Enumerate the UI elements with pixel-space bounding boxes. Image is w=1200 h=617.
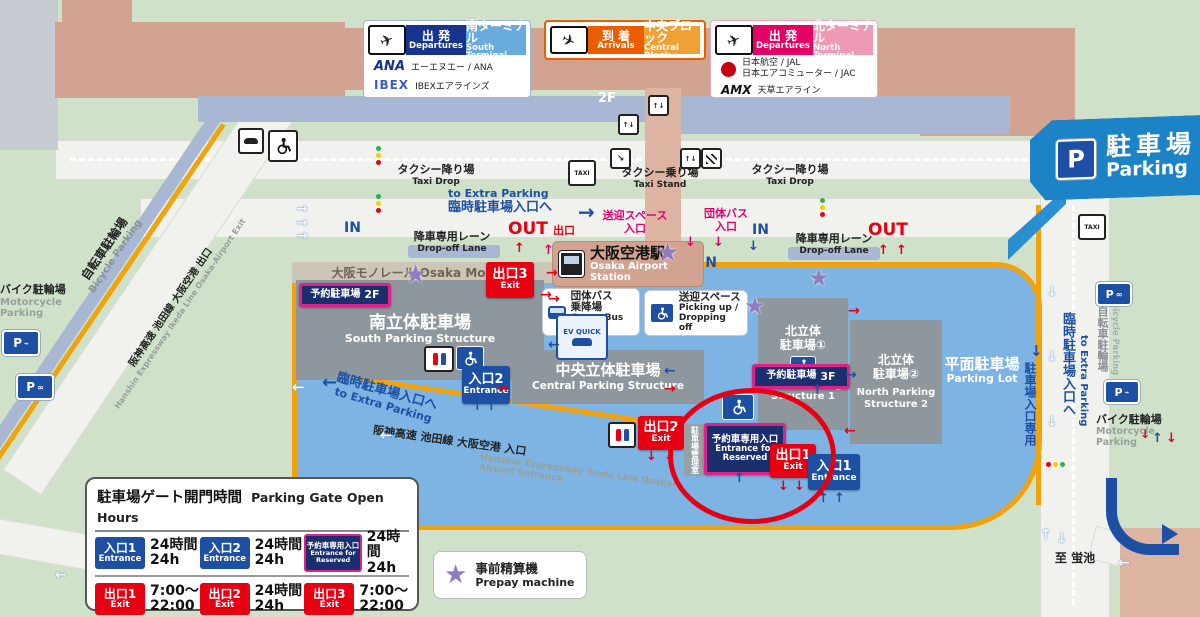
flow-arrow: ← bbox=[292, 380, 305, 395]
terminal-south bbox=[55, 22, 345, 98]
surface-parking-lot: 平面駐車場 Parking Lot bbox=[930, 356, 1034, 386]
car-glyph bbox=[244, 138, 258, 144]
north2-en2: Structure 2 bbox=[864, 399, 928, 411]
arrivals-jp: 到 着 bbox=[602, 30, 630, 42]
flow-arrow: ↑ bbox=[543, 244, 554, 257]
flow-arrow: → bbox=[845, 368, 857, 382]
terminal-deck-north bbox=[680, 96, 1010, 134]
motorcycle-jp: バイク駐輪場 bbox=[1096, 414, 1196, 427]
bicycle-glyph: ∞ bbox=[37, 383, 44, 392]
departures-cell: 出 発 Departures bbox=[406, 25, 466, 55]
bicycle-p-icon: P∞ bbox=[1096, 282, 1132, 306]
gate-hours-cell: 入口1 Entrance 24時間 24h bbox=[95, 537, 200, 569]
hours-line1: 24時間 bbox=[255, 538, 302, 553]
reserved-badge-jp: 予約駐車場 bbox=[766, 371, 816, 382]
flow-arrow: ↓ bbox=[1166, 432, 1177, 445]
flow-arrow: ← bbox=[322, 374, 337, 392]
badge-en2: Reserved bbox=[306, 557, 359, 564]
prepay-star-icon: ★ bbox=[404, 262, 427, 288]
flow-arrow: ↓ bbox=[1046, 350, 1058, 364]
ev-quick-charger: EV QUICK bbox=[556, 314, 608, 360]
flow-arrow: ← bbox=[497, 364, 509, 378]
taxi-icon: TAXI bbox=[1078, 214, 1106, 240]
to-hotarugaike-label: 至 蛍池 bbox=[1040, 552, 1110, 566]
scooter-glyph: ⌁ bbox=[24, 339, 29, 348]
prepay-en: Prepay machine bbox=[475, 576, 574, 589]
flow-arrow: ↓ bbox=[1046, 285, 1058, 299]
south-terminal-header: ✈ 出 発 Departures 南ターミナル South Terminal A… bbox=[363, 20, 531, 98]
badge-jp: 入口2 bbox=[200, 542, 250, 555]
train-icon bbox=[559, 251, 584, 277]
south-terminal-cell: 南ターミナル South Terminal bbox=[466, 25, 526, 55]
gate-hours-panel: 駐車場ゲート開門時間 Parking Gate Open Hours 入口1 E… bbox=[85, 477, 419, 611]
wheelchair-glyph bbox=[275, 137, 291, 155]
to-extra-parking-vertical-en: to Extra Parking bbox=[1078, 335, 1089, 445]
gate-hours-cell: 出口1 Exit 7:00～ 22:00 bbox=[95, 583, 200, 615]
plane-glyph: ✈ bbox=[724, 29, 743, 51]
route-curve-arrowhead bbox=[1162, 524, 1178, 544]
pickup-text: 送迎スペース Picking up / Dropping off bbox=[679, 292, 742, 333]
in-text: IN bbox=[344, 220, 361, 236]
taxi-drop-en: Taxi Drop bbox=[742, 177, 838, 187]
lot-jp: 平面駐車場 bbox=[930, 356, 1034, 373]
central-block-header: ✈ 到 着 Arrivals 中央ブロック Central Block bbox=[544, 20, 706, 60]
departures-jp: 出 発 bbox=[422, 30, 450, 42]
groupbus-entrance-jp2: 入口 bbox=[695, 221, 757, 234]
gate-hours-title: 駐車場ゲート開門時間 Parking Gate Open Hours bbox=[95, 484, 409, 532]
flow-arrow: → bbox=[540, 288, 552, 302]
flow-arrow: ← bbox=[664, 364, 676, 378]
entrance2-badge: 入口2 Entrance bbox=[200, 537, 250, 569]
exit1-badge: 出口1 Exit bbox=[95, 583, 145, 615]
prepay-star-icon: ★ bbox=[744, 294, 766, 318]
taxi-drop-en: Taxi Drop bbox=[388, 177, 484, 187]
to-extra-parking-top: to Extra Parking 臨時駐車場入口へ bbox=[448, 188, 578, 216]
prepay-star-icon: ★ bbox=[444, 562, 467, 588]
motorcycle-en1: Motorcycle bbox=[0, 297, 74, 309]
taxi-drop-right: タクシー降り場 Taxi Drop bbox=[742, 164, 838, 187]
gate-hours-row-entrances: 入口1 Entrance 24時間 24h 入口2 Entrance 24時間 … bbox=[95, 532, 409, 574]
reserved-badge-jp: 予約駐車場 bbox=[310, 290, 360, 301]
flow-arrow: ↓ bbox=[1046, 415, 1058, 429]
south-terminal-jp: 南ターミナル bbox=[466, 20, 526, 44]
badge-en: Entrance bbox=[200, 555, 250, 564]
airline-amx: AMX 天草エアライン bbox=[715, 83, 873, 97]
flow-arrow: → bbox=[664, 382, 676, 396]
ev-car-glyph bbox=[572, 338, 592, 346]
flow-arrow: → bbox=[848, 304, 860, 318]
jal-names: 日本航空 / JAL 日本エアコミューター / JAC bbox=[742, 58, 856, 81]
car-drop-icon bbox=[238, 128, 264, 154]
motorcycle-p-icon: P⌁ bbox=[1104, 380, 1140, 404]
arrivals-plane-icon: ✈ bbox=[550, 26, 588, 54]
badge-jp: 入口1 bbox=[95, 542, 145, 555]
hours-line1: 24時間 bbox=[255, 584, 302, 599]
flow-arrow: ← bbox=[1118, 556, 1130, 570]
out-label-east: OUT bbox=[868, 221, 908, 241]
arrivals-cell: 到 着 Arrivals bbox=[588, 26, 644, 54]
banner-text: 駐車場 Parking bbox=[1106, 131, 1196, 182]
north2-jp1: 北立体 bbox=[878, 354, 914, 368]
prepay-legend: ★ 事前精算機 Prepay machine bbox=[433, 551, 587, 599]
departures-plane-icon: ✈ bbox=[715, 25, 753, 55]
dropoff-en: Drop-off Lane bbox=[402, 244, 502, 254]
north2-en1: North Parking bbox=[857, 387, 936, 399]
station-text: 大阪空港駅 Osaka Airport Station bbox=[590, 245, 697, 284]
ibex-logo: IBEX bbox=[374, 78, 409, 92]
hours-line1: 7:00～ bbox=[150, 584, 199, 599]
prepay-text: 事前精算機 Prepay machine bbox=[475, 561, 574, 589]
p-glyph: P bbox=[13, 336, 22, 350]
flow-arrow: ↓ bbox=[1030, 344, 1043, 359]
north-terminal-title: ✈ 出 発 Departures 北ターミナル North Terminal bbox=[715, 25, 873, 55]
central-block-en: Central Block bbox=[644, 44, 700, 61]
north-terminal-jp: 北ターミナル bbox=[813, 20, 873, 44]
exit3-badge: 出口3 Exit bbox=[304, 583, 354, 615]
parking-banner: P 駐車場 Parking bbox=[1030, 115, 1200, 201]
hotarugaike-text: 至 蛍池 bbox=[1040, 552, 1110, 566]
central-block-cell: 中央ブロック Central Block bbox=[644, 26, 700, 54]
wheelchair-glyph bbox=[656, 307, 668, 320]
flow-arrow: ↓ bbox=[646, 450, 657, 463]
bicycle-glyph: ∞ bbox=[1116, 290, 1123, 299]
map-corner-block bbox=[0, 0, 58, 150]
elevator-glyph: ↑↓ bbox=[623, 121, 635, 129]
elevator-icon: ↑↓ bbox=[618, 114, 639, 135]
arrivals-title: ✈ 到 着 Arrivals 中央ブロック Central Block bbox=[550, 26, 700, 54]
flow-arrow: ↑ bbox=[1152, 432, 1163, 445]
hours-line2: 24h bbox=[367, 561, 409, 576]
badge-en: Entrance bbox=[95, 555, 145, 564]
jac-name: 日本エアコミューター / JAC bbox=[742, 69, 856, 80]
flow-arrow: ↓ bbox=[748, 240, 759, 253]
restroom-female bbox=[441, 353, 446, 365]
escalator-icon: ↘ bbox=[610, 148, 631, 169]
out-text: OUT bbox=[868, 220, 908, 240]
south-terminal-en: South Terminal bbox=[466, 44, 526, 61]
hours-line2: 22:00 bbox=[150, 599, 199, 614]
flow-arrow: ↑ bbox=[812, 384, 823, 397]
traffic-light bbox=[376, 146, 381, 165]
restroom-icon bbox=[608, 422, 636, 448]
motorcycle-parking-left: バイク駐輪場 Motorcycle Parking bbox=[0, 284, 74, 320]
p-glyph: P bbox=[1115, 386, 1123, 399]
dropoff-jp: 降車専用レーン bbox=[402, 231, 502, 244]
hours-value: 24時間 24h bbox=[367, 530, 409, 576]
traffic-light bbox=[820, 198, 825, 217]
parking-banner-en: Parking bbox=[1106, 156, 1196, 182]
central-structure-jp: 中央立体駐車場 bbox=[555, 362, 660, 379]
north2-jp2: 駐車場② bbox=[873, 368, 919, 382]
flow-arrow: → bbox=[546, 266, 558, 280]
restroom-female bbox=[624, 429, 629, 441]
reserved-badge-floor: 2F bbox=[364, 289, 379, 301]
hours-value: 24時間 24h bbox=[150, 538, 197, 569]
airline-ana: ANA エーエヌエー / ANA bbox=[368, 59, 526, 74]
flow-arrow: → bbox=[296, 202, 308, 216]
terminal-deck-south bbox=[198, 96, 646, 122]
extra-parking-arrow: → bbox=[578, 202, 595, 222]
bicycle-parking-vertical-en: Bicycle Parking bbox=[1110, 302, 1120, 392]
north-terminal-header: ✈ 出 発 Departures 北ターミナル North Terminal 日… bbox=[710, 20, 878, 98]
out-text: OUT bbox=[508, 219, 548, 239]
p-glyph: P bbox=[26, 380, 35, 394]
taxi-glyph: TAXI bbox=[574, 170, 589, 177]
jal-name: 日本航空 / JAL bbox=[742, 58, 856, 69]
elevator-icon: ↑↓ bbox=[680, 148, 701, 169]
taxi-drop-jp: タクシー降り場 bbox=[388, 164, 484, 177]
wheelchair-icon bbox=[650, 303, 674, 323]
taxi-glyph: TAXI bbox=[1084, 224, 1099, 231]
flow-arrow: ← bbox=[844, 424, 856, 438]
taxi-drop-jp: タクシー降り場 bbox=[742, 164, 838, 177]
badge-en: Exit bbox=[95, 601, 145, 610]
taxi-icon: TAXI bbox=[568, 160, 596, 186]
dropoff-lane-west: 降車専用レーン Drop-off Lane bbox=[402, 231, 502, 254]
pickup-entrance-label: 送迎スペース 入口 bbox=[590, 210, 680, 235]
flow-arrow: ↑ bbox=[472, 400, 483, 413]
hours-value: 7:00～ 22:00 bbox=[359, 584, 408, 615]
parking-banner-jp: 駐車場 bbox=[1106, 131, 1196, 159]
out-label-west: OUT 出口 bbox=[508, 220, 578, 240]
group-bus-jp2: 乗降場 bbox=[571, 302, 634, 314]
amx-logo: AMX bbox=[721, 83, 751, 97]
hours-value: 24時間 24h bbox=[255, 538, 302, 569]
gate-hours-cell: 出口3 Exit 7:00～ 22:00 bbox=[304, 583, 409, 615]
badge-en: Exit bbox=[200, 601, 250, 610]
escalator-glyph: ↘ bbox=[617, 154, 625, 164]
floor-2f-text: 2F bbox=[598, 92, 616, 107]
reserved-2f-badge: 予約駐車場 2F bbox=[299, 283, 391, 307]
restroom-icon bbox=[424, 346, 454, 372]
out-exit-jp: 出口 bbox=[553, 224, 575, 237]
dropoff-en: Drop-off Lane bbox=[784, 246, 884, 256]
prepay-star-icon: ★ bbox=[808, 266, 830, 290]
pickup-space: 送迎スペース Picking up / Dropping off bbox=[644, 290, 748, 336]
ev-quick-label: EV QUICK bbox=[563, 329, 600, 336]
taxi-stand: タクシー乗り場 Taxi Stand bbox=[612, 167, 708, 190]
flow-arrow: ↓ bbox=[1056, 532, 1068, 546]
gate-hours-title-jp: 駐車場ゲート開門時間 bbox=[97, 490, 242, 506]
stairs-icon bbox=[701, 148, 722, 169]
amx-name: 天草エアライン bbox=[757, 83, 820, 96]
plane-glyph: ✈ bbox=[559, 29, 579, 52]
airline-ibex: IBEX IBEXエアラインズ bbox=[368, 78, 526, 92]
flow-arrow: → bbox=[497, 382, 509, 396]
flow-arrow: ↓ bbox=[713, 236, 724, 249]
in-text: IN bbox=[752, 222, 769, 238]
departures-en: Departures bbox=[756, 42, 810, 51]
south-structure-jp: 南立体駐車場 bbox=[369, 314, 471, 334]
pickup-entrance-jp1: 送迎スペース bbox=[590, 210, 680, 223]
ibex-name: IBEXエアラインズ bbox=[415, 79, 490, 92]
hours-line1: 24時間 bbox=[150, 538, 197, 553]
osaka-airport-station: 大阪空港駅 Osaka Airport Station bbox=[552, 241, 704, 287]
p-glyph: P bbox=[1067, 145, 1085, 174]
hours-line2: 22:00 bbox=[359, 599, 408, 614]
traffic-light bbox=[1046, 462, 1065, 467]
gate-hours-cell: 入口2 Entrance 24時間 24h bbox=[200, 537, 305, 569]
in-label-west: IN bbox=[344, 220, 361, 236]
departures-en: Departures bbox=[409, 42, 463, 51]
restroom-male bbox=[433, 353, 438, 365]
central-block-jp: 中央ブロック bbox=[644, 20, 700, 44]
bicycle-p-icon: P∞ bbox=[16, 374, 54, 400]
gate-hours-cell: 出口2 Exit 24時間 24h bbox=[200, 583, 305, 615]
p-glyph: P bbox=[1106, 288, 1114, 301]
north-terminal-cell: 北ターミナル North Terminal bbox=[813, 25, 873, 55]
airport-parking-map: 大阪モノレール Osaka Monorail ✈ 出 発 Departures … bbox=[0, 0, 1200, 617]
arrivals-en: Arrivals bbox=[597, 42, 634, 51]
groupbus-entrance-jp1: 団体バス bbox=[695, 208, 757, 221]
flow-arrow: ↓ bbox=[1140, 428, 1150, 440]
stairs-glyph bbox=[706, 154, 717, 164]
extra-parking-jp: 臨時駐車場入口へ bbox=[448, 201, 578, 216]
scooter-glyph: ⌁ bbox=[1125, 388, 1130, 397]
motorcycle-jp: バイク駐輪場 bbox=[0, 284, 74, 297]
jal-logo bbox=[721, 62, 736, 77]
flow-arrow: ↑ bbox=[878, 244, 889, 257]
extra-parking-en: to Extra Parking bbox=[448, 188, 578, 201]
hours-line2: 24h bbox=[255, 553, 302, 568]
south-terminal-title: ✈ 出 発 Departures 南ターミナル South Terminal bbox=[368, 25, 526, 55]
wheelchair-icon bbox=[268, 130, 298, 162]
hours-value: 7:00～ 22:00 bbox=[150, 584, 199, 615]
gate-hours-cell: 予約車専用入口 Entrance for Reserved 24時間 24h bbox=[304, 530, 409, 576]
pickup-entrance-jp2: 入口 bbox=[590, 223, 680, 236]
flow-arrow: → bbox=[296, 229, 308, 243]
flow-arrow: ↑ bbox=[486, 400, 497, 413]
badge-en: Exit bbox=[304, 601, 354, 610]
exit2-badge: 出口2 Exit bbox=[200, 583, 250, 615]
badge-jp: 出口3 bbox=[304, 588, 354, 601]
elevator-glyph: ↑↓ bbox=[653, 102, 665, 110]
parking-p-sign: P bbox=[1056, 139, 1096, 180]
motorcycle-p-icon: P⌁ bbox=[2, 330, 40, 356]
floor-2f-label: 2F bbox=[598, 92, 616, 107]
parking-entrance-only-label: 駐車場入口専用 bbox=[1022, 362, 1039, 482]
to-extra-parking-vertical-jp: 臨時駐車場入口へ bbox=[1058, 312, 1077, 442]
groupbus-entrance-label: 団体バス 入口 bbox=[695, 208, 757, 233]
elevator-icon: ↑↓ bbox=[648, 95, 669, 116]
exit3-en: Exit bbox=[486, 282, 534, 291]
hours-line2: 24h bbox=[150, 553, 197, 568]
central-structure-en: Central Parking Structure bbox=[532, 380, 684, 392]
hours-line1: 7:00～ bbox=[359, 584, 408, 599]
exit3-badge: 出口3 Exit bbox=[486, 262, 534, 298]
ana-name: エーエヌエー / ANA bbox=[411, 60, 493, 73]
flow-arrow: ← bbox=[548, 338, 560, 352]
elevator-glyph: ↑↓ bbox=[685, 155, 697, 163]
reserved-3f-badge: 予約駐車場 3F bbox=[752, 364, 850, 389]
entrance1-badge: 入口1 Entrance bbox=[95, 537, 145, 569]
ana-logo: ANA bbox=[374, 59, 405, 74]
reserved-badge-floor: 3F bbox=[820, 371, 835, 383]
departures-plane-icon: ✈ bbox=[368, 25, 406, 55]
departures-cell: 出 発 Departures bbox=[753, 25, 813, 55]
flow-arrow: ↑ bbox=[1040, 528, 1052, 542]
departures-jp: 出 発 bbox=[769, 30, 797, 42]
hours-line2: 24h bbox=[255, 599, 302, 614]
wheelchair-glyph bbox=[463, 351, 477, 366]
south-structure-en: South Parking Structure bbox=[345, 333, 495, 346]
station-jp: 大阪空港駅 bbox=[590, 245, 697, 262]
hours-value: 24時間 24h bbox=[255, 584, 302, 615]
north1-jp1: 北立体 bbox=[785, 325, 821, 339]
motorcycle-en2: Parking bbox=[0, 308, 74, 320]
gate-hours-row-exits: 出口1 Exit 7:00～ 22:00 出口2 Exit 24時間 24h bbox=[95, 578, 409, 617]
flow-arrow: ↑ bbox=[896, 244, 907, 257]
lot-en: Parking Lot bbox=[930, 373, 1034, 386]
hours-line1: 24時間 bbox=[367, 530, 409, 561]
taxi-stand-en: Taxi Stand bbox=[612, 180, 708, 190]
pickup-en2: Dropping off bbox=[679, 314, 742, 334]
airline-jal: 日本航空 / JAL 日本エアコミューター / JAC bbox=[715, 58, 873, 81]
north-parking-structure-2: 北立体 駐車場② North Parking Structure 2 bbox=[850, 320, 942, 444]
reserved-entrance-highlight-circle bbox=[668, 388, 836, 524]
badge-jp: 出口2 bbox=[200, 588, 250, 601]
flow-arrow: ← bbox=[55, 568, 67, 582]
prepay-star-icon: ★ bbox=[656, 240, 679, 266]
exit3-jp: 出口3 bbox=[486, 268, 534, 282]
prepay-jp: 事前精算機 bbox=[475, 561, 574, 576]
reserved-entrance-badge: 予約車専用入口 Entrance for Reserved bbox=[304, 534, 361, 572]
flow-arrow: ← bbox=[380, 428, 393, 443]
plane-glyph: ✈ bbox=[377, 29, 396, 51]
taxi-drop-left: タクシー降り場 Taxi Drop bbox=[388, 164, 484, 187]
badge-jp: 出口1 bbox=[95, 588, 145, 601]
flow-arrow: ↓ bbox=[685, 236, 696, 249]
north1-jp2: 駐車場① bbox=[780, 339, 826, 353]
station-en: Osaka Airport Station bbox=[590, 261, 697, 283]
in-label-center: IN bbox=[752, 222, 769, 238]
restroom-male bbox=[616, 429, 621, 441]
flow-arrow: ↑ bbox=[514, 242, 525, 255]
traffic-light bbox=[376, 194, 381, 213]
flow-arrow: ↑ bbox=[834, 492, 845, 505]
